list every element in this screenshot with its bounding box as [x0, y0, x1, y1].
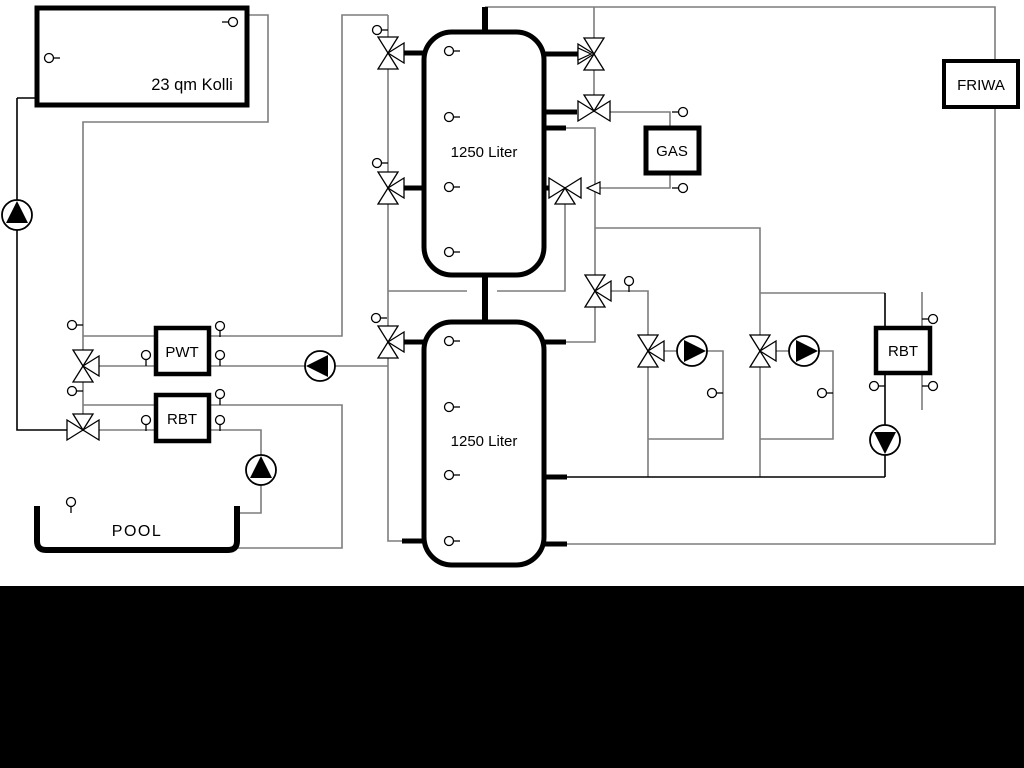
temperature-sensor-icon: [216, 322, 225, 338]
temperature-sensor-icon: [373, 159, 389, 168]
return-pump-icon: [870, 425, 900, 455]
solar-collector: 23 qm Kolli: [37, 8, 247, 105]
rbt-left-label: RBT: [167, 411, 197, 428]
three-way-valve-icon: [378, 326, 404, 358]
three-way-valve-icon: [585, 275, 611, 307]
three-way-valve-icon: [638, 335, 664, 367]
friwa-label: FRIWA: [957, 77, 1005, 94]
pool-heat-exchanger-pwt: PWT: [156, 328, 209, 374]
temperature-sensor-icon: [818, 389, 834, 398]
screen: 23 qm Kolli 1250 Liter 1250 Liter GAS FR…: [0, 0, 1024, 768]
three-way-valve-icon: [378, 37, 404, 69]
rbt-right-label: RBT: [888, 343, 918, 360]
three-way-valve-icon: [378, 172, 404, 204]
temperature-sensor-icon: [672, 108, 688, 117]
pwt-label: PWT: [165, 344, 198, 361]
three-way-valve-icon: [549, 178, 581, 204]
buffer-tank-1: 1250 Liter: [424, 32, 544, 275]
temperature-sensor-icon: [216, 351, 225, 367]
temperature-sensor-icon: [68, 387, 84, 396]
heating-controller-rbt: RBT: [876, 328, 930, 373]
temperature-sensor-icon: [922, 315, 938, 324]
three-way-valve-icon: [67, 414, 99, 440]
three-way-valve-icon: [750, 335, 776, 367]
temperature-sensor-icon: [372, 314, 388, 323]
friwa-station: FRIWA: [944, 61, 1018, 107]
solar-collector-label: 23 qm Kolli: [151, 76, 233, 94]
buffer-tank-2: 1250 Liter: [424, 322, 544, 565]
hydraulic-schematic: 23 qm Kolli 1250 Liter 1250 Liter GAS FR…: [0, 0, 1024, 586]
temperature-sensor-icon: [142, 416, 151, 432]
temperature-sensor-icon: [922, 382, 938, 391]
three-way-valve-icon: [73, 350, 99, 382]
temperature-sensor-icon: [68, 321, 84, 330]
pool-label: POOL: [112, 523, 162, 540]
swimming-pool: POOL: [37, 506, 237, 550]
heating-circuit-1-pump-icon: [677, 336, 707, 366]
gas-boiler-label: GAS: [656, 143, 688, 160]
schematic-canvas: 23 qm Kolli 1250 Liter 1250 Liter GAS FR…: [0, 0, 1024, 586]
flow-arrow-icon: [587, 182, 600, 194]
pwt-primary-pump-icon: [305, 351, 335, 381]
temperature-sensor-icon: [870, 382, 886, 391]
pool-pump-icon: [246, 455, 276, 485]
pool-controller-rbt: RBT: [156, 395, 209, 441]
gas-boiler: GAS: [646, 128, 699, 173]
temperature-sensor-icon: [216, 416, 225, 432]
temperature-sensor-icon: [142, 351, 151, 367]
letterbox-bottom: [0, 586, 1024, 768]
heating-circuit-2-pump-icon: [789, 336, 819, 366]
buffer-tank-2-label: 1250 Liter: [451, 433, 518, 450]
three-way-valve-icon: [578, 95, 610, 121]
temperature-sensor-icon: [67, 498, 76, 514]
temperature-sensor-icon: [373, 26, 389, 35]
temperature-sensor-icon: [672, 184, 688, 193]
temperature-sensor-icon: [216, 390, 225, 406]
solar-pump-icon: [2, 200, 32, 230]
temperature-sensor-icon: [625, 277, 634, 293]
temperature-sensor-icon: [708, 389, 724, 398]
buffer-tank-1-label: 1250 Liter: [451, 144, 518, 161]
